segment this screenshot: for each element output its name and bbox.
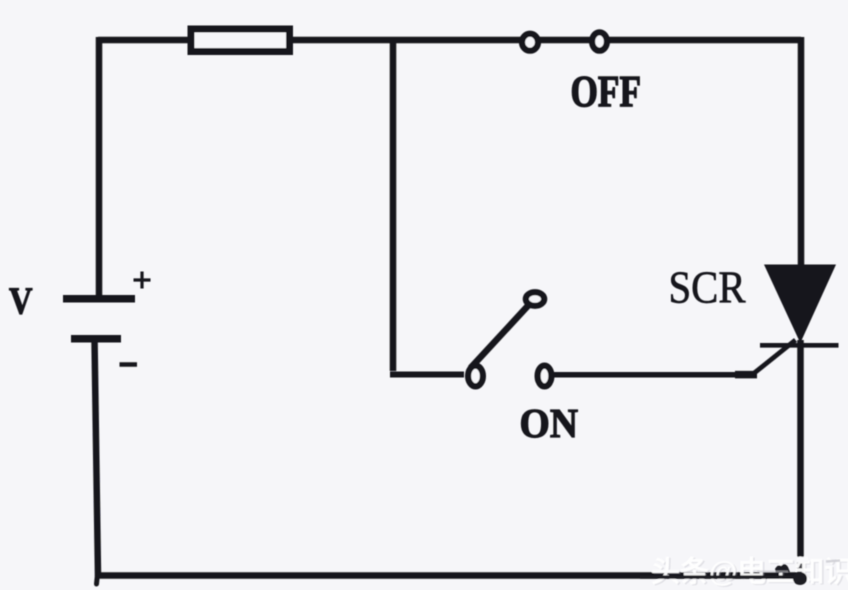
svg-text:OFF: OFF bbox=[571, 66, 642, 116]
svg-text:V: V bbox=[9, 281, 33, 323]
svg-text:ON: ON bbox=[520, 400, 579, 446]
svg-text:SCR: SCR bbox=[669, 262, 746, 313]
svg-text:头条@电工知识: 头条@电工知识 bbox=[651, 555, 848, 589]
